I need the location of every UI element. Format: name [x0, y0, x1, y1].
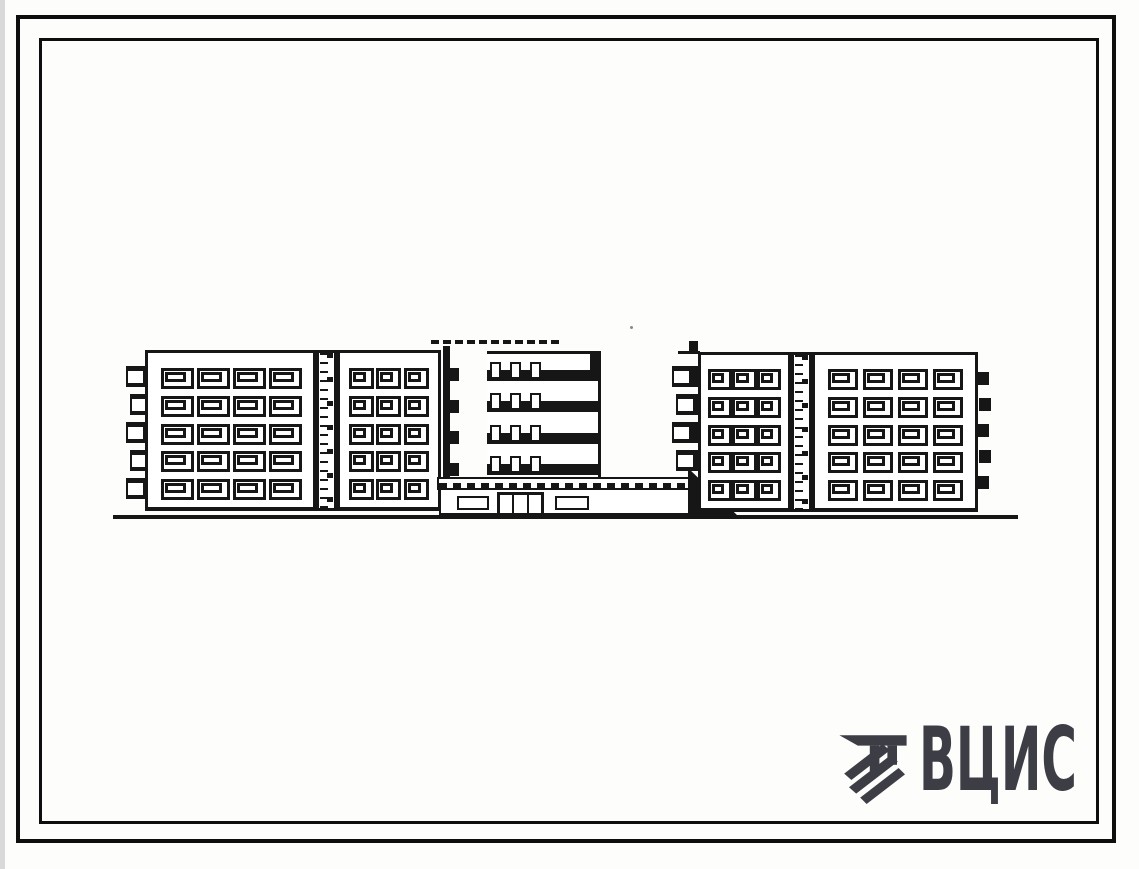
window: [376, 451, 401, 472]
entrance-door: [497, 492, 544, 516]
window-sash: [867, 484, 885, 494]
window-sash: [201, 428, 222, 438]
tower-balcony-floors: [487, 351, 601, 480]
window-sash: [832, 401, 850, 411]
window-sash: [832, 373, 850, 383]
window-sash: [867, 429, 885, 439]
window-sash: [165, 372, 186, 382]
window: [828, 369, 858, 390]
window-sash: [712, 401, 724, 411]
balcony-end: [977, 424, 989, 437]
window: [732, 369, 756, 390]
vcis-emblem-icon: [833, 724, 913, 804]
window-sash: [408, 428, 421, 438]
window: [197, 368, 230, 389]
window-sash: [237, 400, 258, 410]
window: [898, 397, 928, 418]
balcony-end: [979, 450, 991, 463]
window: [404, 396, 429, 417]
window: [161, 368, 194, 389]
window-sash: [902, 373, 920, 383]
window: [757, 480, 781, 501]
balcony-door: [490, 425, 501, 442]
window-sash: [353, 372, 366, 382]
window: [757, 452, 781, 473]
window-sash: [165, 455, 186, 465]
right-balcony-end-stack: [977, 372, 991, 489]
window-sash: [867, 401, 885, 411]
ground-line: [113, 515, 1018, 519]
balcony-end: [977, 476, 989, 489]
window-sash: [937, 484, 955, 494]
window-sash: [380, 428, 393, 438]
window-sash: [761, 429, 773, 439]
window: [898, 480, 928, 501]
window: [404, 479, 429, 500]
podium-window: [457, 496, 489, 510]
window-sash: [353, 483, 366, 493]
window-sash: [201, 372, 222, 382]
window: [757, 397, 781, 418]
window: [732, 425, 756, 446]
window: [828, 425, 858, 446]
logo-text: ВЦИС: [919, 724, 1077, 804]
balcony-doors: [490, 456, 541, 473]
window: [161, 396, 194, 417]
window-sash: [165, 400, 186, 410]
window: [898, 425, 928, 446]
tower-notch: [450, 431, 459, 444]
window: [404, 424, 429, 445]
tower-left-wall: [443, 346, 450, 481]
window: [933, 397, 963, 418]
window: [933, 369, 963, 390]
window-sash: [273, 483, 294, 493]
balcony-end: [979, 398, 991, 411]
window: [349, 368, 374, 389]
tower-floor: [487, 449, 598, 481]
window: [233, 396, 266, 417]
balcony-door: [490, 362, 501, 379]
entrance-door-panel: [514, 495, 526, 513]
window: [376, 424, 401, 445]
window: [828, 452, 858, 473]
balcony-doors: [490, 362, 541, 379]
window-sash: [408, 455, 421, 465]
window-sash: [902, 456, 920, 466]
window: [269, 479, 302, 500]
window-sash: [761, 484, 773, 494]
window-sash: [408, 483, 421, 493]
right-wing-block-c: [698, 352, 791, 512]
window: [708, 480, 732, 501]
window-sash: [902, 484, 920, 494]
window: [933, 425, 963, 446]
window: [376, 396, 401, 417]
window: [269, 451, 302, 472]
window: [376, 479, 401, 500]
window-sash: [380, 483, 393, 493]
left-wing-block-b: [337, 350, 441, 511]
window: [349, 451, 374, 472]
window-sash: [712, 484, 724, 494]
window: [404, 451, 429, 472]
podium-window: [555, 496, 589, 510]
window: [828, 480, 858, 501]
window-sash: [712, 373, 724, 383]
window-sash: [832, 456, 850, 466]
tower-notch: [450, 463, 459, 476]
window-sash: [761, 401, 773, 411]
window: [863, 369, 893, 390]
window-sash: [201, 400, 222, 410]
entrance-door-panel: [529, 495, 541, 513]
window: [161, 479, 194, 500]
window-sash: [937, 456, 955, 466]
right-balcony-stack: [672, 366, 700, 471]
tower-floor: [487, 354, 598, 386]
window-sash: [353, 455, 366, 465]
window: [197, 396, 230, 417]
tower-floor: [487, 417, 598, 449]
window-sash: [237, 483, 258, 493]
window: [161, 424, 194, 445]
window: [863, 425, 893, 446]
window-sash: [273, 428, 294, 438]
scan-speck: [630, 326, 633, 329]
tower-floor: [487, 386, 598, 418]
balcony: [676, 394, 700, 415]
window: [863, 397, 893, 418]
window: [197, 479, 230, 500]
balcony-door: [530, 362, 541, 379]
window-sash: [201, 455, 222, 465]
window: [732, 397, 756, 418]
window: [708, 397, 732, 418]
window-sash: [201, 483, 222, 493]
window: [376, 368, 401, 389]
window: [233, 368, 266, 389]
window-sash: [736, 484, 748, 494]
window: [349, 424, 374, 445]
vcis-logotype: ВЦИС: [919, 724, 1081, 804]
window-sash: [165, 483, 186, 493]
window-sash: [165, 428, 186, 438]
window-sash: [937, 429, 955, 439]
window-sash: [832, 429, 850, 439]
window-sash: [237, 455, 258, 465]
window: [233, 479, 266, 500]
window: [898, 452, 928, 473]
window: [732, 480, 756, 501]
window: [708, 452, 732, 473]
balcony-door: [510, 362, 521, 379]
window: [863, 452, 893, 473]
window-sash: [736, 401, 748, 411]
tower-notch-stack: [450, 368, 459, 476]
window-sash: [273, 372, 294, 382]
balcony-door: [490, 393, 501, 410]
window-sash: [380, 455, 393, 465]
window: [708, 425, 732, 446]
window-sash: [380, 372, 393, 382]
window: [757, 425, 781, 446]
window-sash: [867, 373, 885, 383]
tower-notch: [450, 400, 459, 413]
balcony-door: [530, 456, 541, 473]
right-wing-block-d: [812, 352, 978, 512]
window-sash: [237, 428, 258, 438]
window-sash: [353, 400, 366, 410]
window: [349, 396, 374, 417]
window: [404, 368, 429, 389]
tower-corner-shadow: [590, 353, 601, 372]
window: [197, 451, 230, 472]
balcony-doors: [490, 393, 541, 410]
roof-step-line: [678, 351, 700, 354]
window: [933, 480, 963, 501]
window-sash: [408, 372, 421, 382]
window-sash: [712, 456, 724, 466]
window-sash: [736, 373, 748, 383]
window: [732, 452, 756, 473]
window: [233, 424, 266, 445]
window: [269, 396, 302, 417]
window-sash: [832, 484, 850, 494]
window-sash: [736, 429, 748, 439]
balcony: [676, 450, 700, 471]
window-sash: [408, 400, 421, 410]
podium-fascia: [437, 477, 694, 490]
window-sash: [937, 401, 955, 411]
window-sash: [761, 456, 773, 466]
entrance-door-panel: [500, 495, 512, 513]
window-sash: [867, 456, 885, 466]
window-sash: [937, 373, 955, 383]
window: [933, 452, 963, 473]
tower-notch: [450, 368, 459, 381]
left-stairwell-strip: [316, 350, 337, 511]
window-sash: [273, 455, 294, 465]
balcony: [672, 366, 700, 387]
balcony-door: [530, 393, 541, 410]
balcony-door: [490, 456, 501, 473]
window-sash: [353, 428, 366, 438]
balcony-door: [530, 425, 541, 442]
window: [161, 451, 194, 472]
balcony-doors: [490, 425, 541, 442]
window: [269, 424, 302, 445]
window-sash: [237, 372, 258, 382]
window-sash: [902, 401, 920, 411]
window: [708, 369, 732, 390]
balcony: [672, 422, 700, 443]
balcony-door: [510, 425, 521, 442]
balcony-door: [510, 393, 521, 410]
window: [898, 369, 928, 390]
balcony-door: [510, 456, 521, 473]
window-sash: [761, 373, 773, 383]
window: [757, 369, 781, 390]
window: [197, 424, 230, 445]
window-sash: [902, 429, 920, 439]
window-sash: [273, 400, 294, 410]
window: [349, 479, 374, 500]
window: [828, 397, 858, 418]
balcony-end: [977, 372, 989, 385]
scan-edge: [0, 0, 5, 869]
window: [863, 480, 893, 501]
window: [233, 451, 266, 472]
window-sash: [380, 400, 393, 410]
left-wing-block-a: [145, 350, 316, 511]
tower-roof-dashed-line: [431, 340, 559, 344]
window: [269, 368, 302, 389]
window-sash: [712, 429, 724, 439]
window-sash: [736, 456, 748, 466]
right-stairwell-strip: [791, 352, 812, 512]
vcis-logo: ВЦИС: [833, 724, 1083, 804]
